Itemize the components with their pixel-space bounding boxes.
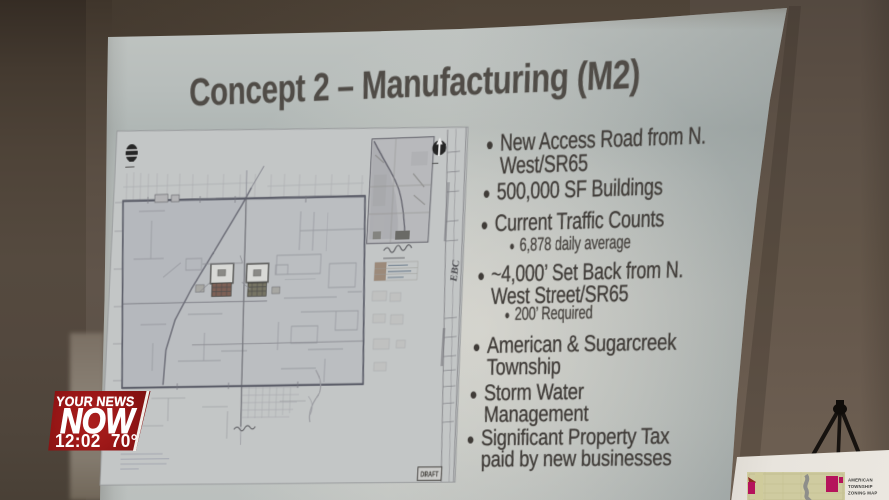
svg-text:AMERICAN: AMERICAN [848, 478, 873, 483]
svg-text:TOWNSHIP: TOWNSHIP [848, 484, 873, 489]
svg-text:DRAFT: DRAFT [420, 470, 439, 479]
svg-text:▬▬: ▬▬ [432, 161, 439, 165]
svg-text:ZONING MAP: ZONING MAP [848, 491, 877, 496]
svg-text:▬▬▬: ▬▬▬ [125, 164, 135, 168]
